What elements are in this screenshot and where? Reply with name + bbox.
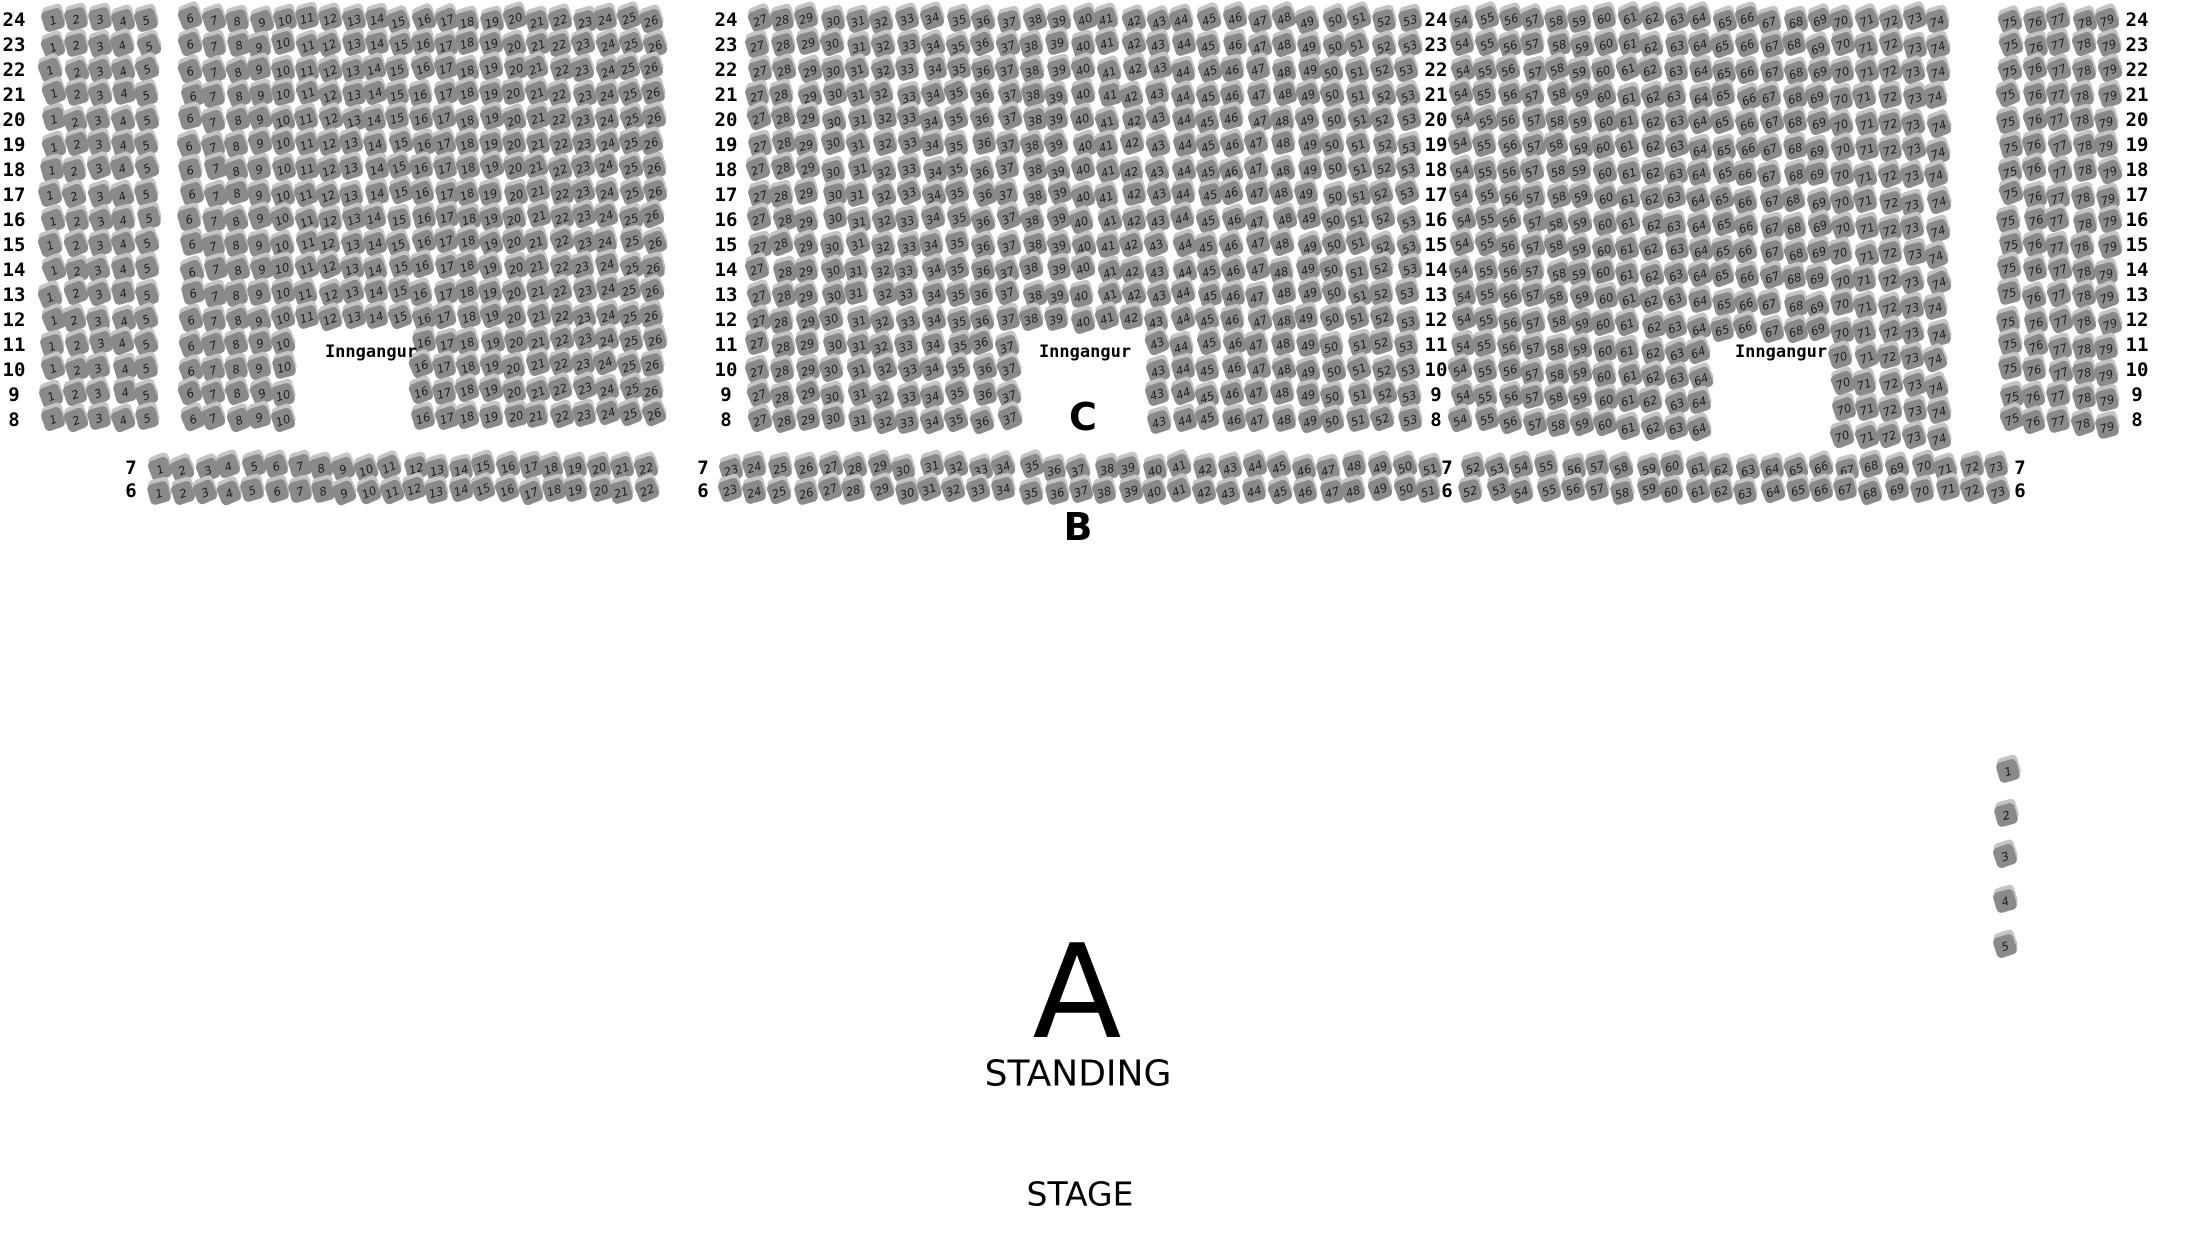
seat-c-row15-num2[interactable]: 2 — [62, 231, 90, 259]
seat-c-row14-num24[interactable]: 24 — [594, 252, 620, 278]
seat-c-row9-num62[interactable]: 62 — [1637, 388, 1663, 414]
seat-c-row12-num44[interactable]: 44 — [1169, 305, 1197, 333]
seat-c-row16-num70[interactable]: 70 — [1829, 215, 1856, 242]
seat-c-row21-num77[interactable]: 77 — [2045, 82, 2071, 108]
seat-c-row12-num66[interactable]: 66 — [1732, 313, 1759, 340]
seat-c-row23-num15[interactable]: 15 — [387, 31, 414, 58]
seat-c-row11-num52[interactable]: 52 — [1368, 330, 1394, 356]
seat-c-row23-num62[interactable]: 62 — [1638, 34, 1665, 61]
seat-c-row23-num56[interactable]: 56 — [1496, 32, 1523, 59]
seat-c-row15-num48[interactable]: 48 — [1269, 231, 1296, 258]
seat-c-row20-num62[interactable]: 62 — [1640, 109, 1666, 135]
seat-c-row24-num8[interactable]: 8 — [224, 8, 250, 34]
seat-c-row18-num43[interactable]: 43 — [1144, 158, 1171, 185]
seat-c-row24-num45[interactable]: 45 — [1195, 6, 1222, 33]
seat-c-row23-num44[interactable]: 44 — [1171, 31, 1197, 57]
seat-c-row17-num2[interactable]: 2 — [61, 183, 88, 210]
seat-c-row14-num5[interactable]: 5 — [134, 255, 160, 281]
seat-c-row15-num37[interactable]: 37 — [995, 232, 1022, 259]
seat-b-row6-num25[interactable]: 25 — [766, 478, 793, 505]
seat-c-row23-num28[interactable]: 28 — [770, 32, 796, 58]
seat-c-row22-num56[interactable]: 56 — [1494, 57, 1521, 84]
seat-c-row10-num20[interactable]: 20 — [500, 355, 526, 381]
seat-c-row22-num16[interactable]: 16 — [409, 54, 436, 81]
seat-c-row20-num76[interactable]: 76 — [2021, 106, 2048, 133]
seat-c-row12-num6[interactable]: 6 — [177, 306, 204, 333]
seat-c-row18-num8[interactable]: 8 — [223, 157, 250, 184]
seat-b-row7-num64[interactable]: 64 — [1759, 456, 1785, 482]
seat-c-row19-num72[interactable]: 72 — [1877, 137, 1903, 163]
seat-c-row8-num18[interactable]: 18 — [453, 403, 480, 430]
seat-c-row20-num51[interactable]: 51 — [1346, 106, 1373, 133]
seat-c-row21-num47[interactable]: 47 — [1246, 82, 1272, 108]
seat-c-row20-num18[interactable]: 18 — [454, 107, 481, 134]
seat-c-row15-num25[interactable]: 25 — [618, 228, 644, 254]
seat-b-row6-num46[interactable]: 46 — [1292, 479, 1318, 505]
seat-c-row13-num49[interactable]: 49 — [1296, 280, 1323, 307]
seat-c-row18-num26[interactable]: 26 — [641, 155, 667, 181]
seat-c-row18-num32[interactable]: 32 — [870, 158, 897, 185]
seat-c-row20-num44[interactable]: 44 — [1171, 107, 1197, 133]
seat-c-row14-num75[interactable]: 75 — [1996, 255, 2022, 281]
seat-c-row11-num57[interactable]: 57 — [1520, 335, 1546, 361]
seat-c-row11-num76[interactable]: 76 — [2022, 332, 2049, 359]
seat-c-row21-num16[interactable]: 16 — [407, 82, 433, 108]
seat-c-row23-num14[interactable]: 14 — [364, 31, 390, 57]
seat-c-row13-num14[interactable]: 14 — [363, 279, 389, 305]
seat-c-row16-num15[interactable]: 15 — [386, 207, 412, 233]
seat-c-row24-num49[interactable]: 49 — [1294, 8, 1321, 35]
seat-c-row22-num57[interactable]: 57 — [1522, 59, 1548, 85]
seat-c-row21-num69[interactable]: 69 — [1803, 83, 1830, 110]
seat-c-row18-num2[interactable]: 2 — [61, 158, 87, 184]
seat-c-row11-num75[interactable]: 75 — [1997, 331, 2023, 357]
seat-c-row8-num57[interactable]: 57 — [1521, 410, 1548, 437]
seat-c-row10-num32[interactable]: 32 — [871, 356, 898, 383]
seat-c-row21-num48[interactable]: 48 — [1271, 81, 1298, 108]
seat-c-row24-num54[interactable]: 54 — [1448, 8, 1474, 34]
seat-c-row22-num62[interactable]: 62 — [1637, 57, 1664, 84]
seat-c-row19-num34[interactable]: 34 — [919, 132, 945, 158]
seat-c-row23-num75[interactable]: 75 — [1997, 31, 2025, 59]
seat-c-row18-num37[interactable]: 37 — [994, 155, 1020, 181]
seat-c-row19-num31[interactable]: 31 — [844, 131, 872, 159]
seat-b-row7-num29[interactable]: 29 — [867, 453, 894, 480]
seat-c-row13-num33[interactable]: 33 — [893, 281, 920, 308]
seat-b-row6-num32[interactable]: 32 — [940, 477, 967, 504]
seat-c-row20-num35[interactable]: 35 — [943, 106, 970, 133]
seat-c-row19-num56[interactable]: 56 — [1497, 133, 1525, 161]
seat-c-row9-num51[interactable]: 51 — [1346, 382, 1372, 408]
seat-c-row24-num9[interactable]: 9 — [249, 8, 276, 35]
seat-b-row7-num6[interactable]: 6 — [263, 453, 290, 480]
seat-b-row7-num10[interactable]: 10 — [353, 456, 381, 484]
seat-c-row12-num71[interactable]: 71 — [1851, 319, 1878, 346]
seat-c-row13-num47[interactable]: 47 — [1244, 284, 1270, 310]
seat-c-row9-num78[interactable]: 78 — [2071, 385, 2097, 411]
seat-c-row12-num67[interactable]: 67 — [1758, 318, 1784, 344]
seat-c-row22-num72[interactable]: 72 — [1876, 58, 1903, 85]
seat-c-row19-num21[interactable]: 21 — [525, 131, 551, 157]
seat-c-row24-num51[interactable]: 51 — [1345, 5, 1373, 33]
seat-c-row15-num60[interactable]: 60 — [1590, 236, 1617, 263]
seat-b-row7-num15[interactable]: 15 — [470, 453, 496, 479]
seat-c-row19-num30[interactable]: 30 — [820, 130, 847, 157]
seat-c-row17-num58[interactable]: 58 — [1545, 183, 1572, 210]
seat-c-row24-num48[interactable]: 48 — [1270, 5, 1298, 33]
seat-c-row9-num16[interactable]: 16 — [408, 378, 435, 405]
seat-b-row7-num19[interactable]: 19 — [562, 455, 588, 481]
seat-c-row9-num32[interactable]: 32 — [868, 383, 896, 411]
seat-b-row6-num29[interactable]: 29 — [868, 476, 895, 503]
seat-c-row24-num57[interactable]: 57 — [1519, 6, 1547, 34]
seat-c-row10-num75[interactable]: 75 — [1997, 356, 2023, 382]
seat-c-row13-num26[interactable]: 26 — [639, 277, 666, 304]
seat-b-row7-num35[interactable]: 35 — [1018, 453, 1045, 480]
seat-c-row18-num38[interactable]: 38 — [1021, 157, 1048, 184]
seat-c-row12-num75[interactable]: 75 — [1995, 309, 2021, 335]
seat-c-row8-num37[interactable]: 37 — [996, 405, 1024, 433]
seat-c-row16-num77[interactable]: 77 — [2044, 206, 2071, 233]
seat-c-row16-num78[interactable]: 78 — [2072, 211, 2098, 237]
seat-b-row6-num48[interactable]: 48 — [1340, 478, 1366, 504]
seat-c-row9-num70[interactable]: 70 — [1830, 396, 1856, 422]
seat-c-row23-num35[interactable]: 35 — [944, 33, 971, 60]
seat-c-row20-num42[interactable]: 42 — [1121, 108, 1147, 134]
seat-c-row11-num50[interactable]: 50 — [1319, 334, 1345, 360]
seat-c-row17-num14[interactable]: 14 — [364, 181, 390, 207]
seat-b-row7-num5[interactable]: 5 — [241, 453, 268, 480]
seat-c-row20-num50[interactable]: 50 — [1320, 107, 1347, 134]
seat-c-row9-num3[interactable]: 3 — [84, 379, 111, 406]
seat-c-row23-num32[interactable]: 32 — [870, 32, 897, 59]
seat-c-row23-num45[interactable]: 45 — [1195, 33, 1221, 59]
seat-c-row24-num31[interactable]: 31 — [845, 8, 871, 34]
seat-c-row8-num56[interactable]: 56 — [1497, 408, 1524, 435]
seat-c-row18-num27[interactable]: 27 — [744, 156, 771, 183]
seat-c-row13-num20[interactable]: 20 — [500, 279, 528, 307]
seat-c-row18-num76[interactable]: 76 — [2020, 155, 2047, 182]
seat-c-row10-num61[interactable]: 61 — [1616, 363, 1643, 390]
seat-c-row16-num53[interactable]: 53 — [1395, 208, 1423, 236]
seat-c-row14-num71[interactable]: 71 — [1851, 267, 1877, 293]
seat-c-row11-num74[interactable]: 74 — [1922, 346, 1950, 374]
seat-c-row16-num68[interactable]: 68 — [1780, 215, 1806, 241]
seat-c-row13-num58[interactable]: 58 — [1543, 283, 1570, 310]
seat-c-row8-num29[interactable]: 29 — [795, 406, 821, 432]
seat-c-row20-num20[interactable]: 20 — [501, 106, 528, 133]
seat-c-row14-num13[interactable]: 13 — [339, 256, 366, 283]
seat-c-row19-num75[interactable]: 75 — [1998, 134, 2024, 160]
seat-c-row20-num43[interactable]: 43 — [1144, 105, 1172, 133]
seat-c-row23-num67[interactable]: 67 — [1758, 33, 1784, 59]
seat-c-row10-num29[interactable]: 29 — [795, 357, 821, 383]
seat-c-row15-num59[interactable]: 59 — [1566, 235, 1593, 262]
seat-c-row13-num28[interactable]: 28 — [770, 282, 797, 309]
seat-c-row19-num53[interactable]: 53 — [1396, 134, 1422, 160]
seat-c-row19-num17[interactable]: 17 — [430, 130, 457, 157]
seat-b-row7-num41[interactable]: 41 — [1165, 453, 1193, 481]
seat-c-row8-num51[interactable]: 51 — [1345, 407, 1371, 433]
seat-c-row17-num37[interactable]: 37 — [993, 181, 1019, 207]
seat-c-row14-num51[interactable]: 51 — [1344, 258, 1370, 284]
seat-c-row9-num18[interactable]: 18 — [453, 376, 480, 403]
seat-c-row8-num24[interactable]: 24 — [594, 399, 621, 426]
seat-c-row21-num75[interactable]: 75 — [1995, 81, 2023, 109]
seat-c-row18-num54[interactable]: 54 — [1448, 157, 1475, 184]
seat-c-row19-num11[interactable]: 11 — [293, 130, 320, 157]
seat-c-row13-num60[interactable]: 60 — [1593, 285, 1619, 311]
seat-c-row23-num77[interactable]: 77 — [2045, 30, 2071, 56]
seat-c-row12-num32[interactable]: 32 — [868, 308, 896, 336]
seat-c-row17-num25[interactable]: 25 — [618, 179, 645, 206]
seat-c-row19-num63[interactable]: 63 — [1663, 133, 1690, 160]
seat-c-row14-num3[interactable]: 3 — [84, 257, 111, 284]
seat-c-row24-num44[interactable]: 44 — [1168, 7, 1195, 34]
seat-c-row13-num25[interactable]: 25 — [616, 277, 642, 303]
seat-c-row10-num3[interactable]: 3 — [85, 354, 112, 381]
seat-c-row15-num16[interactable]: 16 — [410, 228, 437, 255]
seat-c-row19-num18[interactable]: 18 — [453, 130, 480, 157]
seat-c-row22-num4[interactable]: 4 — [110, 58, 137, 85]
seat-c-row12-num57[interactable]: 57 — [1520, 310, 1547, 337]
seat-c-row14-num63[interactable]: 63 — [1662, 262, 1689, 289]
seat-b-row6-num21[interactable]: 21 — [608, 479, 634, 505]
seat-c-row19-num14[interactable]: 14 — [362, 132, 388, 158]
seat-c-row20-num79[interactable]: 79 — [2093, 109, 2119, 135]
seat-c-row20-num61[interactable]: 61 — [1614, 108, 1640, 134]
seat-b-row7-num18[interactable]: 18 — [538, 454, 565, 481]
seat-c-row24-num55[interactable]: 55 — [1473, 5, 1500, 32]
seat-c-row13-num45[interactable]: 45 — [1196, 283, 1222, 309]
seat-c-row8-num28[interactable]: 28 — [771, 408, 797, 434]
seat-c-row20-num11[interactable]: 11 — [292, 106, 318, 132]
seat-c-row15-num53[interactable]: 53 — [1395, 233, 1423, 261]
seat-c-row13-num57[interactable]: 57 — [1520, 282, 1546, 308]
seat-b-row7-num45[interactable]: 45 — [1265, 453, 1293, 481]
seat-c-row18-num1[interactable]: 1 — [39, 157, 65, 183]
seat-b-row6-num24[interactable]: 24 — [741, 479, 767, 505]
seat-c-row17-num75[interactable]: 75 — [1997, 180, 2024, 207]
seat-c-row19-num38[interactable]: 38 — [1019, 132, 1046, 159]
seat-c-row10-num9[interactable]: 9 — [246, 355, 272, 381]
seat-c-row13-num52[interactable]: 52 — [1369, 281, 1395, 307]
seat-c-row23-num50[interactable]: 50 — [1321, 33, 1349, 61]
seat-c-row15-num4[interactable]: 4 — [109, 231, 136, 258]
seat-c-row13-num30[interactable]: 30 — [820, 282, 847, 309]
seat-c-row24-num15[interactable]: 15 — [385, 8, 412, 35]
seat-c-row18-num25[interactable]: 25 — [617, 154, 644, 181]
seat-c-row17-num46[interactable]: 46 — [1218, 180, 1245, 207]
seat-c-row14-num56[interactable]: 56 — [1496, 258, 1522, 284]
seat-c-row21-num50[interactable]: 50 — [1319, 81, 1346, 108]
seat-c-row22-num77[interactable]: 77 — [2045, 57, 2073, 85]
seat-c-row18-num17[interactable]: 17 — [432, 155, 458, 181]
seat-c-row19-num71[interactable]: 71 — [1854, 136, 1880, 162]
seat-c-row18-num63[interactable]: 63 — [1663, 161, 1689, 187]
seat-c-row22-num15[interactable]: 15 — [384, 57, 410, 83]
seat-side-2[interactable]: 2 — [1994, 802, 2020, 828]
seat-c-row9-num21[interactable]: 21 — [524, 378, 551, 405]
seat-c-row9-num24[interactable]: 24 — [593, 377, 620, 404]
seat-c-row13-num10[interactable]: 10 — [269, 280, 295, 306]
seat-c-row22-num53[interactable]: 53 — [1393, 57, 1420, 84]
seat-c-row13-num5[interactable]: 5 — [134, 282, 160, 308]
seat-c-row24-num52[interactable]: 52 — [1371, 8, 1397, 34]
seat-c-row15-num10[interactable]: 10 — [268, 232, 295, 259]
seat-b-row6-num39[interactable]: 39 — [1118, 478, 1144, 504]
seat-b-row6-num37[interactable]: 37 — [1068, 478, 1094, 504]
seat-c-row8-num48[interactable]: 48 — [1271, 407, 1297, 433]
seat-c-row17-num26[interactable]: 26 — [641, 179, 668, 206]
seat-c-row22-num34[interactable]: 34 — [922, 56, 948, 82]
seat-c-row16-num22[interactable]: 22 — [549, 205, 576, 232]
seat-c-row15-num75[interactable]: 75 — [1998, 232, 2024, 258]
seat-c-row8-num26[interactable]: 26 — [640, 400, 668, 428]
seat-c-row10-num45[interactable]: 45 — [1194, 357, 1220, 383]
seat-c-row21-num51[interactable]: 51 — [1345, 83, 1371, 109]
seat-c-row16-num26[interactable]: 26 — [638, 202, 666, 230]
seat-c-row16-num52[interactable]: 52 — [1369, 205, 1396, 232]
seat-c-row19-num76[interactable]: 76 — [2021, 132, 2047, 158]
seat-c-row20-num8[interactable]: 8 — [225, 106, 252, 133]
seat-c-row24-num21[interactable]: 21 — [524, 8, 550, 34]
seat-c-row17-num56[interactable]: 56 — [1498, 184, 1524, 210]
seat-c-row13-num29[interactable]: 29 — [793, 282, 820, 309]
seat-c-row20-num37[interactable]: 37 — [996, 105, 1024, 133]
seat-c-row17-num79[interactable]: 79 — [2095, 186, 2121, 212]
seat-c-row11-num10[interactable]: 10 — [270, 330, 297, 357]
seat-c-row18-num18[interactable]: 18 — [455, 154, 482, 181]
seat-side-4[interactable]: 4 — [1992, 888, 2018, 914]
seat-c-row23-num68[interactable]: 68 — [1780, 31, 1806, 57]
seat-c-row9-num49[interactable]: 49 — [1295, 382, 1321, 408]
seat-b-row6-num56[interactable]: 56 — [1560, 476, 1586, 502]
seat-b-row6-num62[interactable]: 62 — [1708, 478, 1734, 504]
seat-c-row16-num51[interactable]: 51 — [1344, 207, 1371, 234]
seat-c-row22-num9[interactable]: 9 — [246, 56, 272, 82]
seat-b-row7-num37[interactable]: 37 — [1065, 456, 1093, 484]
seat-b-row6-num10[interactable]: 10 — [355, 478, 383, 506]
seat-c-row21-num44[interactable]: 44 — [1170, 83, 1197, 110]
seat-c-row17-num8[interactable]: 8 — [224, 180, 250, 206]
seat-c-row17-num23[interactable]: 23 — [569, 178, 597, 206]
seat-c-row16-num69[interactable]: 69 — [1806, 212, 1833, 239]
seat-c-row14-num40[interactable]: 40 — [1069, 255, 1096, 282]
seat-c-row20-num41[interactable]: 41 — [1094, 108, 1121, 135]
seat-c-row20-num36[interactable]: 36 — [969, 106, 996, 133]
seat-b-row6-num5[interactable]: 5 — [239, 477, 265, 503]
seat-c-row19-num77[interactable]: 77 — [2046, 132, 2074, 160]
seat-c-row11-num27[interactable]: 27 — [744, 330, 770, 356]
seat-c-row24-num71[interactable]: 71 — [1854, 6, 1882, 34]
seat-c-row22-num64[interactable]: 64 — [1688, 58, 1714, 84]
seat-c-row10-num43[interactable]: 43 — [1145, 357, 1172, 384]
seat-c-row21-num53[interactable]: 53 — [1394, 82, 1421, 109]
seat-b-row7-num63[interactable]: 63 — [1734, 456, 1761, 483]
seat-c-row9-num22[interactable]: 22 — [546, 375, 573, 402]
seat-c-row23-num63[interactable]: 63 — [1664, 33, 1690, 59]
seat-c-row8-num50[interactable]: 50 — [1319, 407, 1346, 434]
seat-c-row9-num37[interactable]: 37 — [995, 382, 1023, 410]
seat-c-row17-num19[interactable]: 19 — [477, 181, 503, 207]
seat-c-row24-num58[interactable]: 58 — [1543, 8, 1569, 34]
seat-c-row17-num51[interactable]: 51 — [1346, 183, 1372, 209]
seat-c-row18-num10[interactable]: 10 — [271, 155, 297, 181]
seat-c-row9-num48[interactable]: 48 — [1269, 380, 1295, 406]
seat-c-row24-num13[interactable]: 13 — [340, 7, 367, 34]
seat-c-row18-num45[interactable]: 45 — [1195, 158, 1222, 185]
seat-c-row18-num57[interactable]: 57 — [1519, 158, 1546, 185]
seat-b-row7-num11[interactable]: 11 — [376, 453, 404, 481]
seat-c-row11-num19[interactable]: 19 — [479, 330, 506, 357]
seat-c-row23-num40[interactable]: 40 — [1070, 33, 1096, 59]
seat-c-row14-num64[interactable]: 64 — [1686, 262, 1713, 289]
seat-c-row23-num55[interactable]: 55 — [1473, 31, 1500, 58]
seat-c-row19-num23[interactable]: 23 — [571, 131, 597, 157]
seat-c-row11-num28[interactable]: 28 — [770, 334, 796, 360]
seat-c-row23-num58[interactable]: 58 — [1546, 32, 1572, 58]
seat-c-row12-num29[interactable]: 29 — [795, 308, 822, 335]
seat-c-row22-num12[interactable]: 12 — [316, 58, 344, 86]
seat-c-row13-num39[interactable]: 39 — [1044, 282, 1071, 309]
seat-c-row9-num28[interactable]: 28 — [769, 383, 795, 409]
seat-c-row14-num12[interactable]: 12 — [315, 253, 343, 281]
seat-c-row24-num47[interactable]: 47 — [1246, 8, 1272, 34]
seat-c-row19-num2[interactable]: 2 — [63, 131, 89, 157]
seat-c-row24-num79[interactable]: 79 — [2094, 6, 2121, 33]
seat-c-row16-num5[interactable]: 5 — [136, 206, 162, 232]
seat-c-row13-num35[interactable]: 35 — [945, 282, 971, 308]
seat-c-row14-num52[interactable]: 52 — [1368, 255, 1394, 281]
seat-c-row13-num77[interactable]: 77 — [2045, 282, 2072, 309]
seat-c-row18-num41[interactable]: 41 — [1095, 157, 1122, 184]
seat-c-row15-num39[interactable]: 39 — [1045, 232, 1072, 259]
seat-c-row10-num35[interactable]: 35 — [944, 356, 971, 383]
seat-c-row22-num48[interactable]: 48 — [1271, 58, 1297, 84]
seat-c-row17-num43[interactable]: 43 — [1145, 181, 1172, 208]
seat-c-row20-num72[interactable]: 72 — [1877, 111, 1903, 137]
seat-c-row15-num35[interactable]: 35 — [944, 230, 970, 256]
seat-c-row22-num46[interactable]: 46 — [1219, 57, 1245, 83]
seat-c-row16-num33[interactable]: 33 — [894, 208, 920, 234]
seat-c-row15-num54[interactable]: 54 — [1448, 231, 1475, 258]
seat-c-row18-num79[interactable]: 79 — [2096, 158, 2124, 186]
seat-c-row16-num46[interactable]: 46 — [1220, 206, 1247, 233]
seat-c-row9-num73[interactable]: 73 — [1902, 398, 1928, 424]
seat-c-row8-num61[interactable]: 61 — [1615, 415, 1642, 442]
seat-c-row17-num68[interactable]: 68 — [1779, 186, 1806, 213]
seat-c-row24-num3[interactable]: 3 — [87, 6, 113, 32]
seat-c-row20-num38[interactable]: 38 — [1022, 107, 1048, 133]
seat-c-row19-num32[interactable]: 32 — [871, 131, 897, 157]
seat-c-row13-num76[interactable]: 76 — [2020, 284, 2047, 311]
seat-c-row8-num35[interactable]: 35 — [943, 406, 970, 433]
seat-b-row6-num58[interactable]: 58 — [1609, 480, 1635, 506]
seat-c-row23-num1[interactable]: 1 — [39, 33, 66, 60]
seat-c-row13-num71[interactable]: 71 — [1852, 294, 1879, 321]
seat-c-row19-num39[interactable]: 39 — [1043, 131, 1071, 159]
seat-c-row19-num1[interactable]: 1 — [40, 133, 67, 160]
seat-c-row14-num42[interactable]: 42 — [1119, 258, 1145, 284]
seat-c-row11-num60[interactable]: 60 — [1592, 338, 1618, 364]
seat-b-row6-num41[interactable]: 41 — [1165, 476, 1193, 504]
seat-c-row14-num7[interactable]: 7 — [203, 256, 229, 282]
seat-c-row24-num78[interactable]: 78 — [2072, 8, 2099, 35]
seat-c-row17-num12[interactable]: 12 — [314, 182, 341, 209]
seat-c-row21-num46[interactable]: 46 — [1219, 83, 1245, 109]
seat-b-row6-num52[interactable]: 52 — [1458, 478, 1484, 504]
